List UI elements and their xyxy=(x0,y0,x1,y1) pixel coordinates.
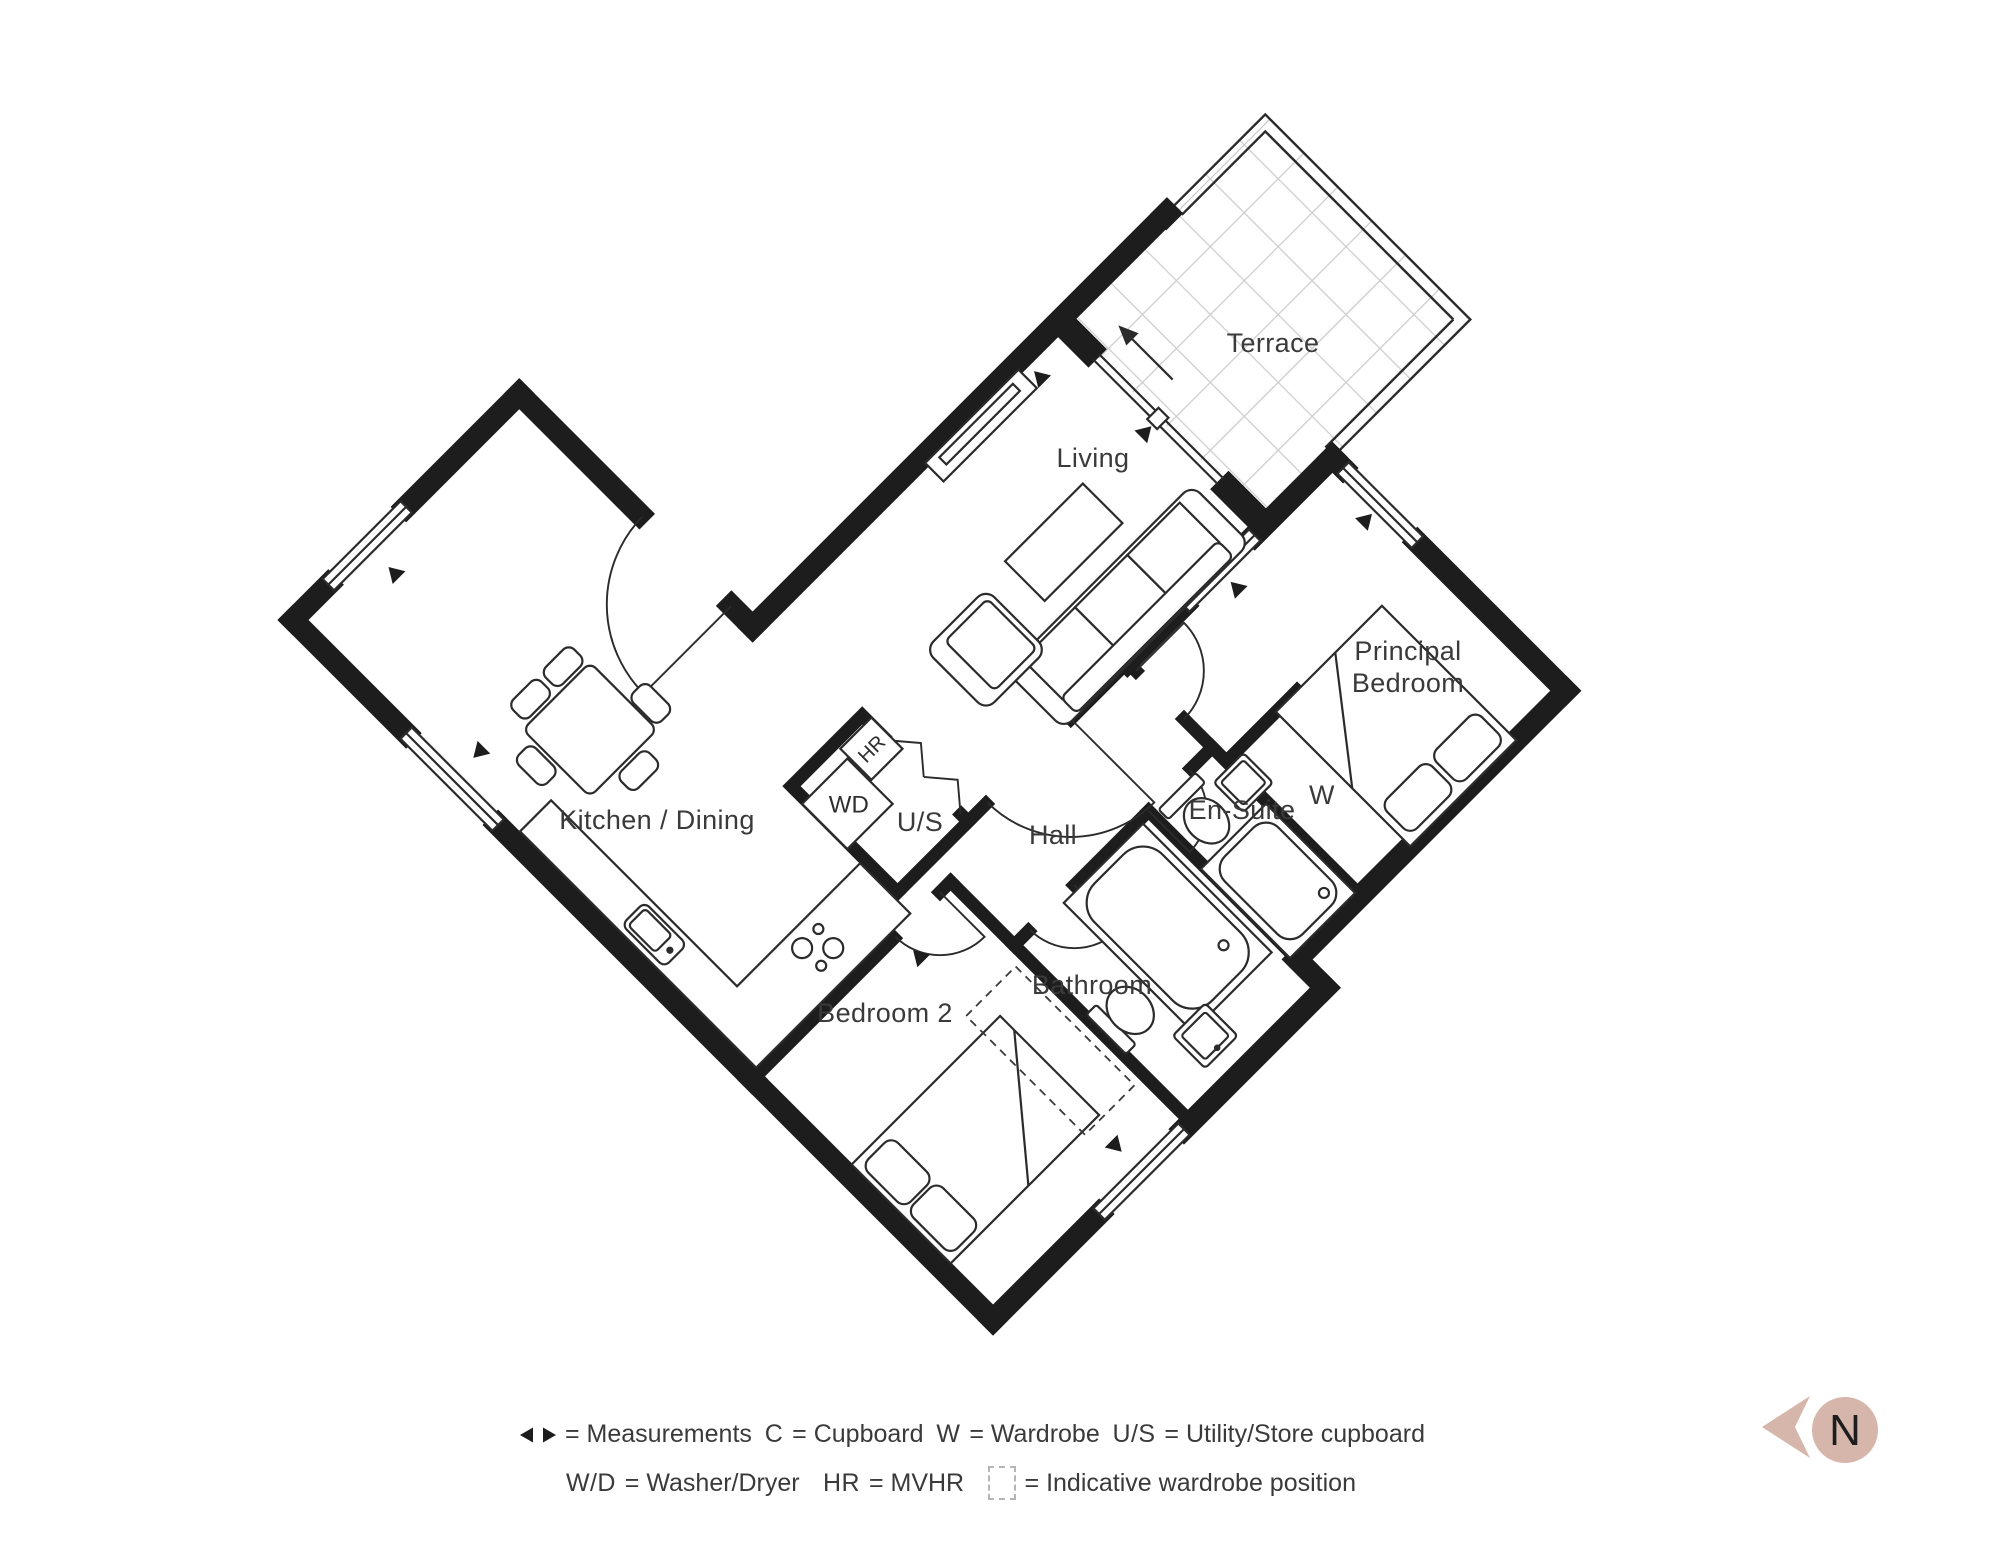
label-principal-bedroom-2: Bedroom xyxy=(1352,668,1464,698)
label-living: Living xyxy=(1057,443,1130,473)
legend-mvhr: HR = MVHR xyxy=(823,1469,964,1498)
legend-utility-store: U/S = Utility/Store cupboard xyxy=(1113,1420,1425,1449)
kitchen-left-window xyxy=(400,727,503,830)
us-bifold-door xyxy=(887,725,976,814)
wd-box-label: WD xyxy=(829,791,869,818)
north-compass: N xyxy=(1762,1396,1878,1463)
legend-measurements: = Measurements xyxy=(520,1420,752,1449)
label-principal-bedroom-1: Principal xyxy=(1354,636,1461,666)
dashed-box-icon xyxy=(988,1466,1016,1500)
floorplan-drawing: WD HR Terrace Living Principal Bedroom K… xyxy=(0,0,2000,1561)
legend-row-1: = Measurements C = Cupboard W = Wardrobe… xyxy=(520,1420,1425,1449)
legend-washer-dryer: W/D = Washer/Dryer xyxy=(566,1469,800,1498)
principal-bedroom-window xyxy=(1337,462,1423,548)
label-terrace: Terrace xyxy=(1227,328,1320,358)
label-en-suite: En-Suite xyxy=(1189,795,1296,825)
legend-measurements-text: = Measurements xyxy=(565,1420,752,1449)
floorplan-page: WD HR Terrace Living Principal Bedroom K… xyxy=(0,0,2000,1561)
north-arrow-icon xyxy=(1762,1396,1810,1458)
rotated-plan: WD HR xyxy=(282,0,1738,1331)
label-kitchen-dining: Kitchen / Dining xyxy=(559,805,755,835)
label-hall: Hall xyxy=(1029,820,1077,850)
bedroom2-window xyxy=(1093,1123,1189,1219)
legend-cupboard: C = Cupboard xyxy=(765,1420,924,1449)
label-bedroom2: Bedroom 2 xyxy=(817,998,953,1028)
measure-arrows-icon xyxy=(520,1427,556,1443)
legend-indicative-wardrobe: = Indicative wardrobe position xyxy=(988,1466,1356,1500)
sofa xyxy=(1006,485,1250,729)
label-wardrobe: W xyxy=(1309,780,1335,810)
north-label: N xyxy=(1829,1406,1861,1455)
legend-wardrobe: W = Wardrobe xyxy=(936,1420,1099,1449)
legend-row-2: W/D = Washer/Dryer HR = MVHR = Indicativ… xyxy=(566,1466,1356,1500)
label-bathroom: Bathroom xyxy=(1032,970,1152,1000)
label-us: U/S xyxy=(897,807,943,837)
